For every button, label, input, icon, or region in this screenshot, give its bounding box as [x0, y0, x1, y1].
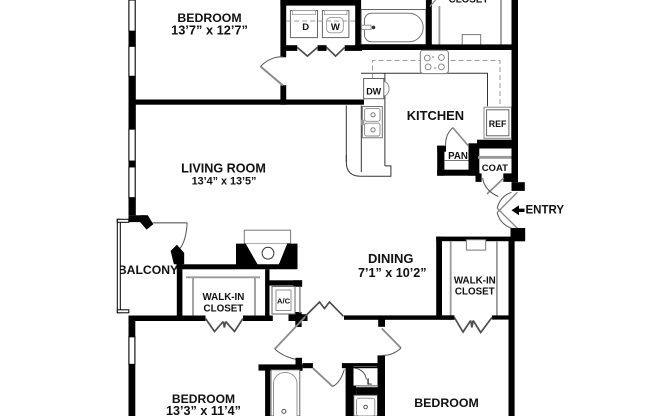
svg-text:CLOSET: CLOSET: [449, 0, 489, 6]
svg-text:ENTRY: ENTRY: [526, 205, 565, 217]
svg-text:13’3” x 11’4”: 13’3” x 11’4”: [166, 404, 241, 416]
svg-text:13’4” x 13’5”: 13’4” x 13’5”: [192, 176, 257, 188]
svg-text:LIVING ROOM: LIVING ROOM: [181, 161, 266, 175]
svg-text:PAN: PAN: [448, 151, 468, 162]
svg-text:BALCONY: BALCONY: [118, 263, 178, 277]
svg-text:A/C: A/C: [277, 297, 291, 306]
svg-text:W: W: [331, 22, 340, 33]
svg-text:L: L: [367, 377, 372, 387]
svg-text:REF: REF: [489, 119, 507, 129]
svg-text:WALK-IN: WALK-IN: [454, 276, 496, 287]
svg-text:D: D: [302, 22, 309, 33]
svg-text:KITCHEN: KITCHEN: [407, 108, 464, 123]
svg-text:7’1” x 10’2”: 7’1” x 10’2”: [358, 266, 427, 280]
svg-text:DINING: DINING: [368, 251, 414, 266]
svg-text:13’7” x 12’7”: 13’7” x 12’7”: [171, 22, 248, 37]
svg-text:DW: DW: [366, 87, 381, 97]
svg-text:BEDROOM: BEDROOM: [414, 396, 478, 410]
svg-text:COAT: COAT: [482, 163, 508, 174]
svg-text:CLOSET: CLOSET: [204, 304, 244, 315]
svg-text:WALK-IN: WALK-IN: [202, 292, 244, 303]
svg-text:CLOSET: CLOSET: [455, 287, 495, 298]
